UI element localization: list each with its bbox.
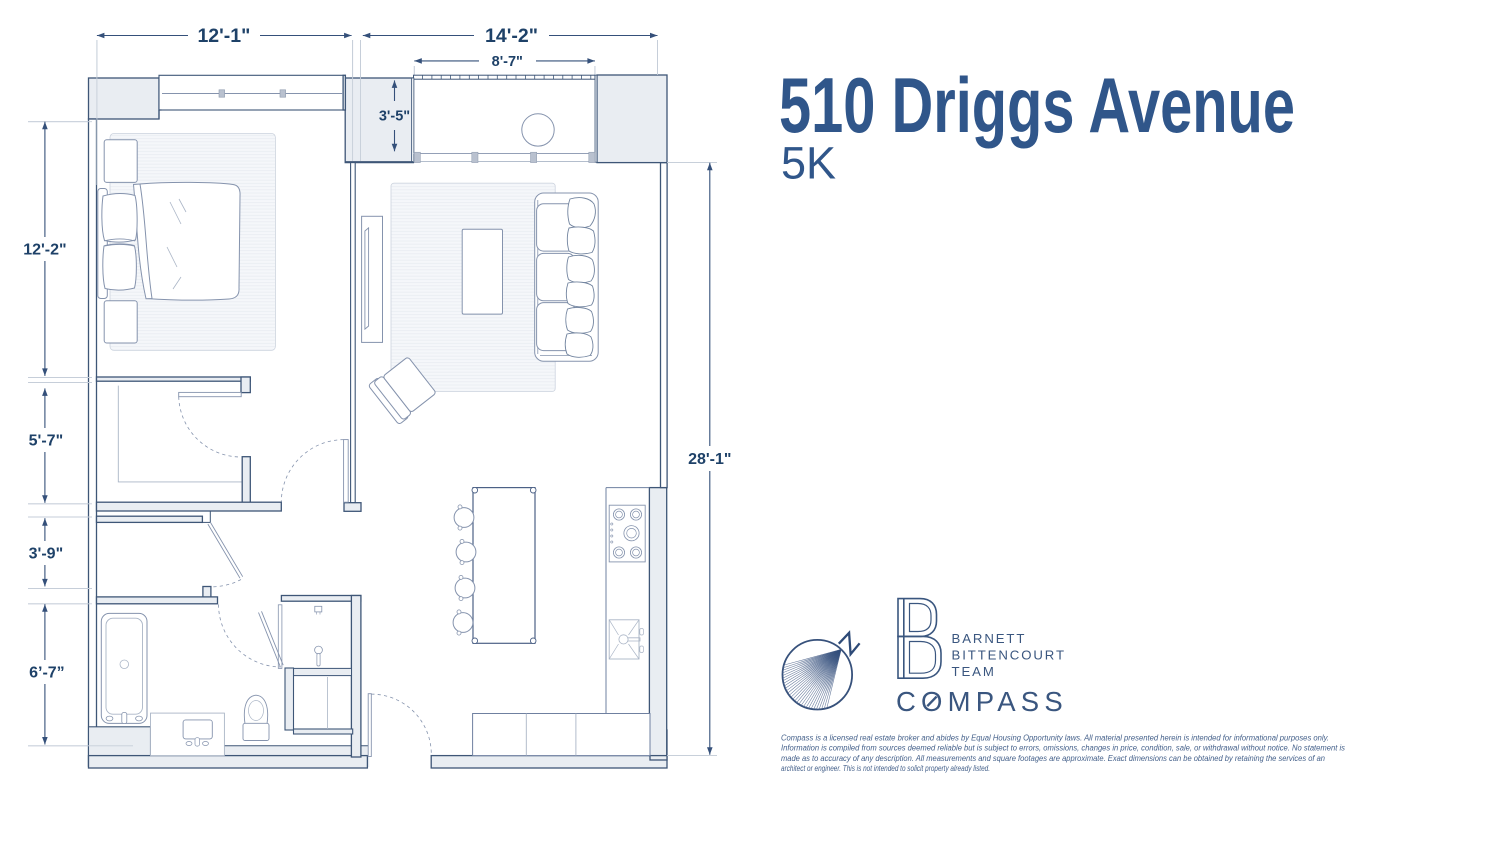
svg-text:made as to accuracy of any des: made as to accuracy of any description. … [781,753,1325,763]
svg-text:12'-1": 12'-1" [197,25,250,47]
svg-text:TEAM: TEAM [952,664,996,679]
svg-text:3'-9": 3'-9" [29,546,64,563]
svg-text:12'-2": 12'-2" [23,241,66,258]
svg-text:BARNETT: BARNETT [952,631,1027,646]
svg-text:Compass is a licensed real est: Compass is a licensed real estate broker… [781,733,1329,743]
svg-text:28'-1": 28'-1" [688,451,731,468]
svg-text:BITTENCOURT: BITTENCOURT [952,648,1066,663]
svg-text:14'-2": 14'-2" [485,25,538,47]
svg-text:3'-5": 3'-5" [379,109,410,125]
svg-text:510 Driggs Avenue: 510 Driggs Avenue [779,61,1295,149]
svg-text:8'-7": 8'-7" [492,54,523,70]
svg-text:architect or engineer. This is: architect or engineer. This is not inten… [781,763,990,773]
svg-text:5K: 5K [781,138,836,189]
svg-text:Information is compiled from s: Information is compiled from sources dee… [781,743,1346,753]
svg-text:COMPASS: COMPASS [896,686,1068,717]
svg-text:5'-7": 5'-7" [29,433,64,450]
svg-text:6’-7”: 6’-7” [29,665,65,682]
